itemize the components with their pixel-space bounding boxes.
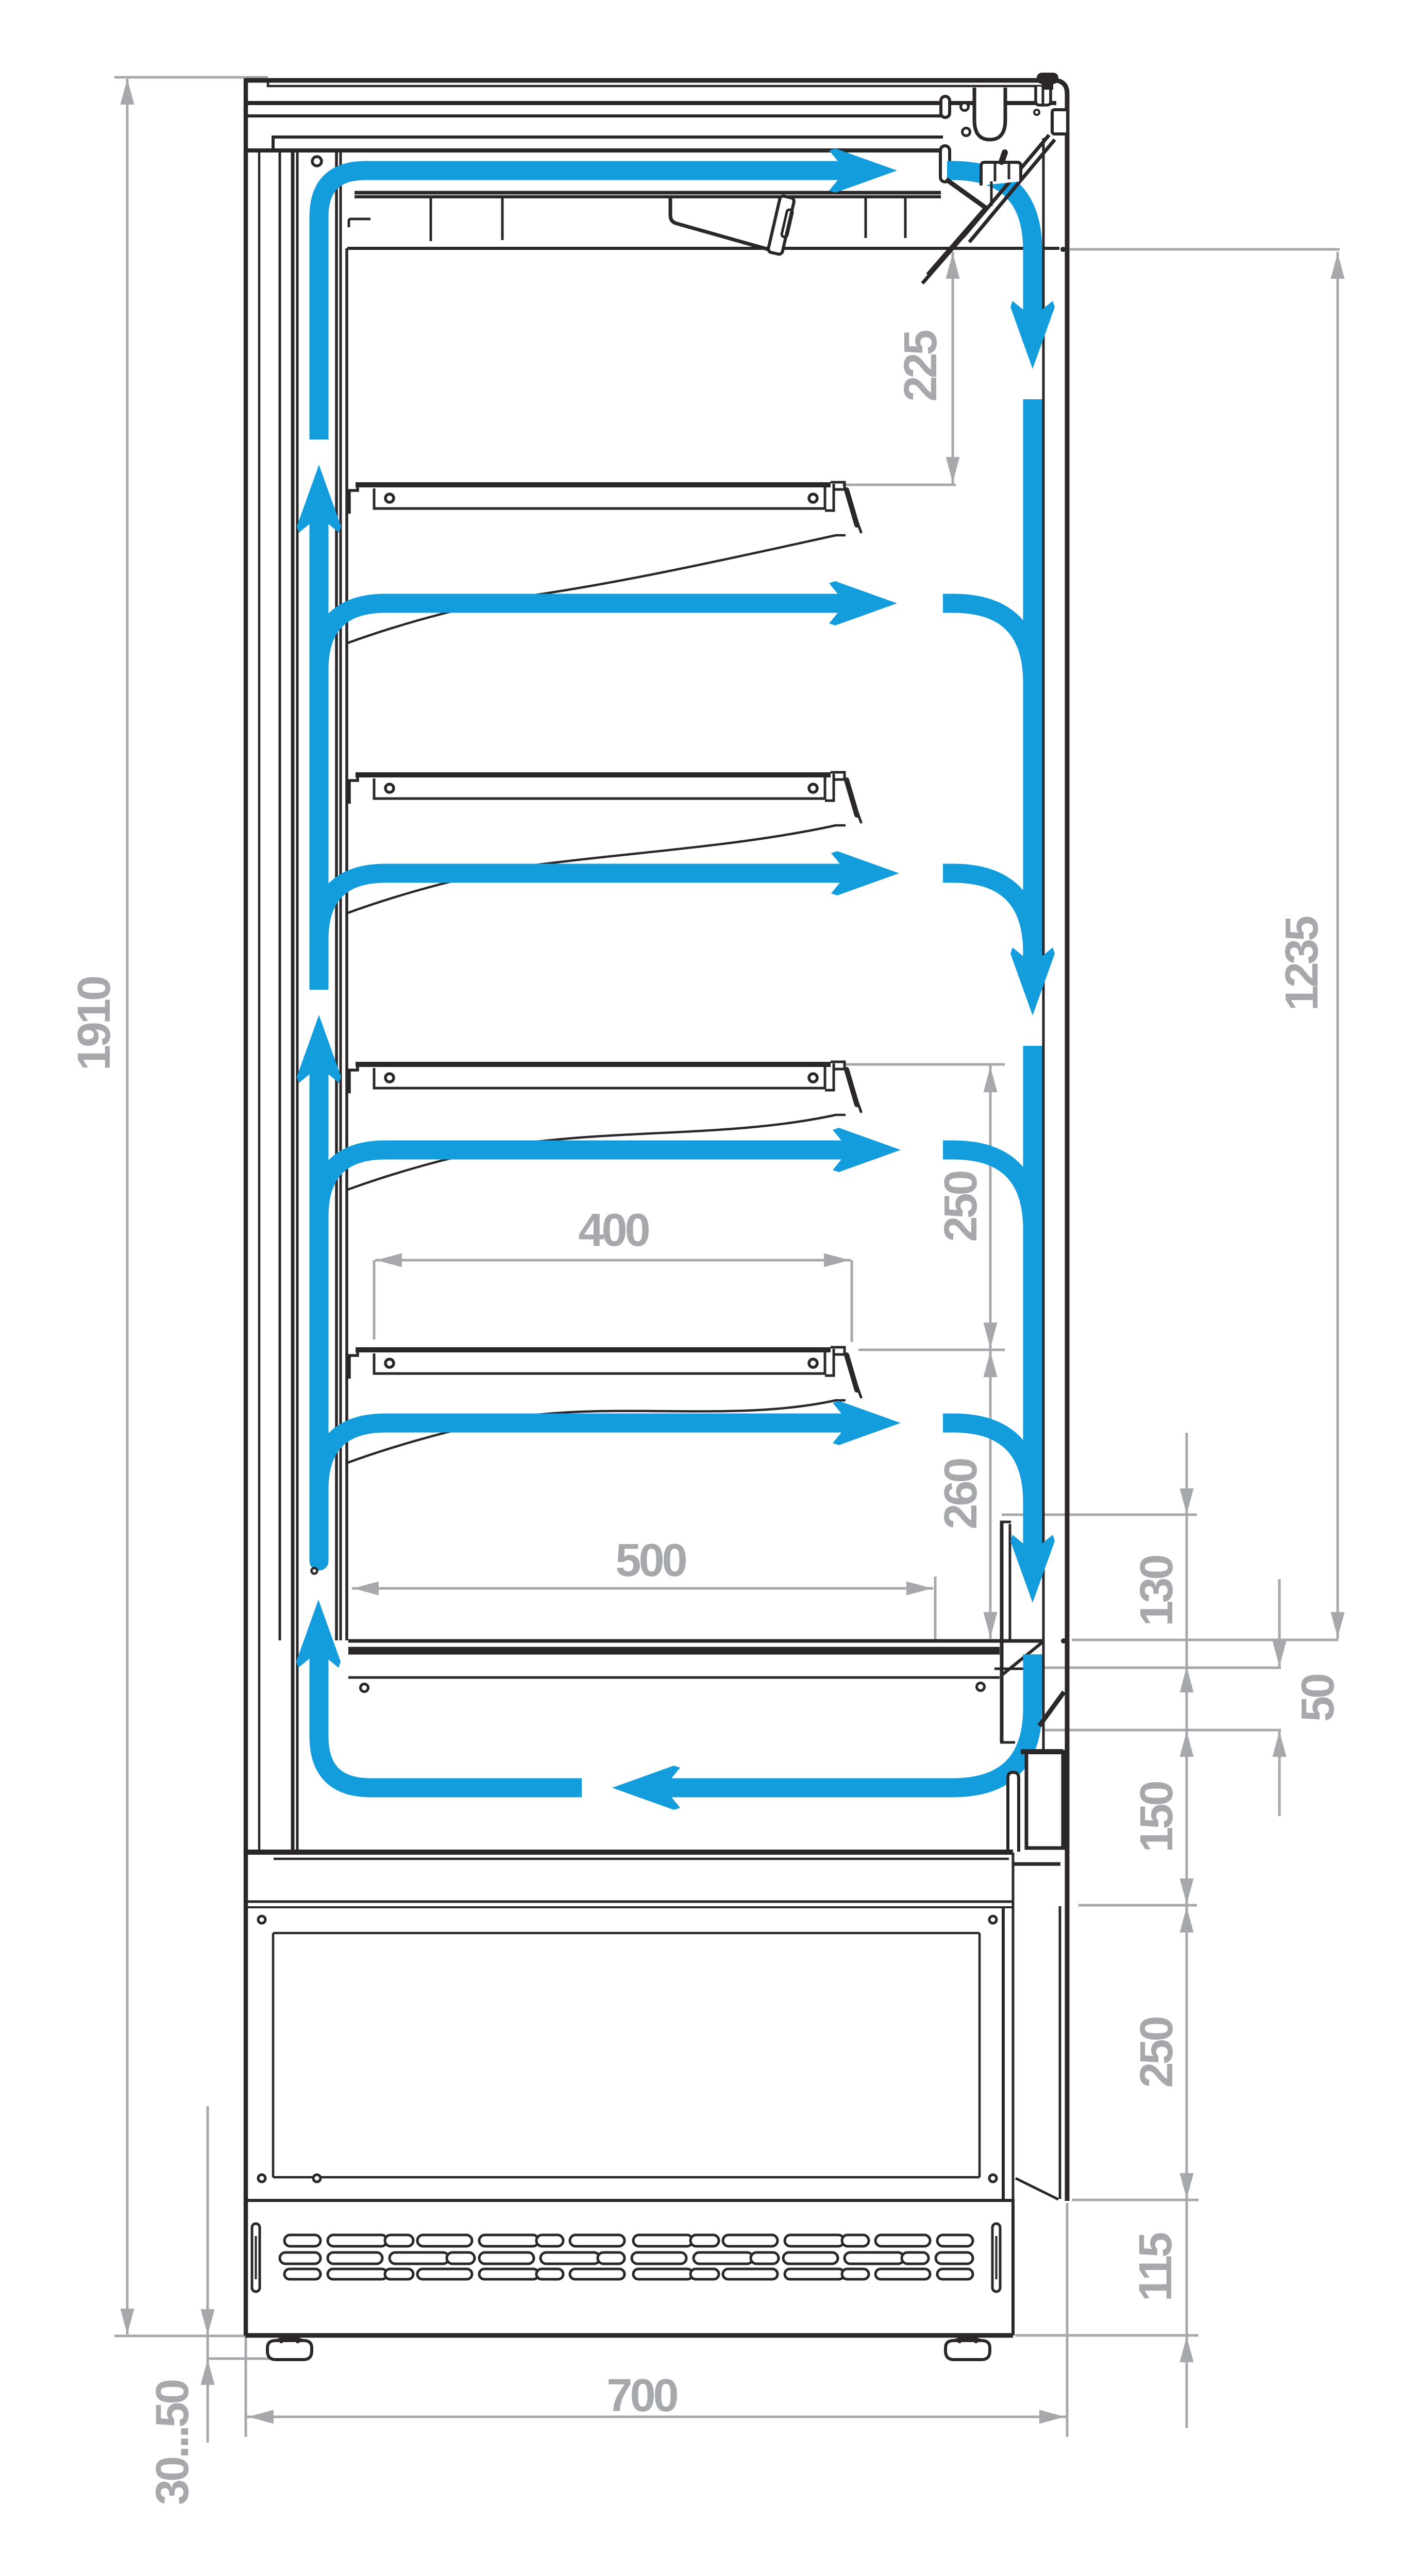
svg-text:250: 250: [935, 1171, 987, 1242]
svg-text:50: 50: [1292, 1674, 1344, 1722]
svg-text:500: 500: [615, 1535, 686, 1586]
svg-text:400: 400: [578, 1205, 649, 1256]
svg-text:30...50: 30...50: [147, 2380, 198, 2505]
svg-text:260: 260: [935, 1459, 987, 1529]
svg-text:225: 225: [895, 330, 947, 401]
svg-text:130: 130: [1131, 1555, 1183, 1626]
svg-text:250: 250: [1131, 2017, 1183, 2088]
svg-text:700: 700: [606, 2370, 677, 2421]
svg-text:115: 115: [1130, 2233, 1182, 2301]
svg-text:1235: 1235: [1276, 917, 1328, 1011]
svg-text:1910: 1910: [69, 977, 120, 1071]
svg-text:150: 150: [1131, 1782, 1183, 1852]
